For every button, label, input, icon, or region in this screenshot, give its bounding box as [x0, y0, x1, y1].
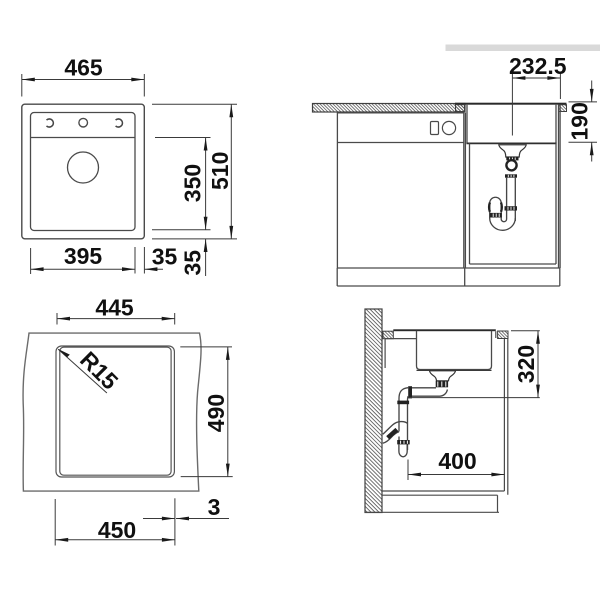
svg-text:510: 510: [207, 152, 233, 190]
svg-text:445: 445: [95, 294, 134, 320]
svg-text:350: 350: [179, 164, 205, 202]
svg-text:35: 35: [180, 250, 206, 276]
svg-text:320: 320: [513, 345, 539, 383]
svg-text:35: 35: [152, 243, 178, 269]
svg-text:450: 450: [98, 517, 136, 543]
svg-text:R15: R15: [75, 346, 123, 394]
svg-text:395: 395: [64, 243, 103, 269]
svg-text:400: 400: [438, 448, 476, 474]
svg-text:232.5: 232.5: [509, 53, 567, 79]
svg-text:3: 3: [208, 494, 221, 520]
svg-text:465: 465: [64, 54, 103, 80]
svg-text:490: 490: [203, 394, 229, 432]
svg-text:190: 190: [567, 102, 593, 140]
